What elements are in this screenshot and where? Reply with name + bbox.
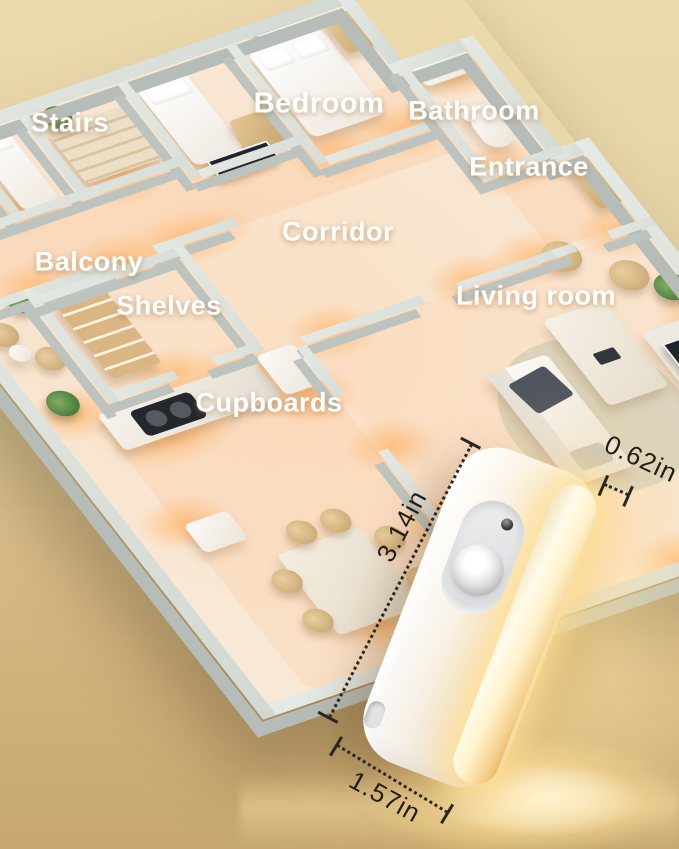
room-label-shelves: Shelves — [116, 291, 222, 322]
room-label-bedroom: Bedroom — [254, 88, 385, 121]
pir-motion-sensor-dome — [444, 536, 511, 603]
product-scene: 3.14in 0.62in 1.57in Stairs Bedroom Bath… — [0, 0, 679, 849]
room-label-bathroom: Bathroom — [408, 96, 540, 127]
room-label-balcony: Balcony — [35, 247, 144, 278]
room-label-corridor: Corridor — [282, 217, 394, 248]
room-label-entrance: Entrance — [469, 152, 589, 183]
light-sensor-dot — [499, 517, 515, 533]
room-label-stairs: Stairs — [31, 108, 109, 139]
room-label-living-room: Living room — [456, 281, 616, 312]
room-label-cupboards: Cupboards — [195, 388, 342, 419]
